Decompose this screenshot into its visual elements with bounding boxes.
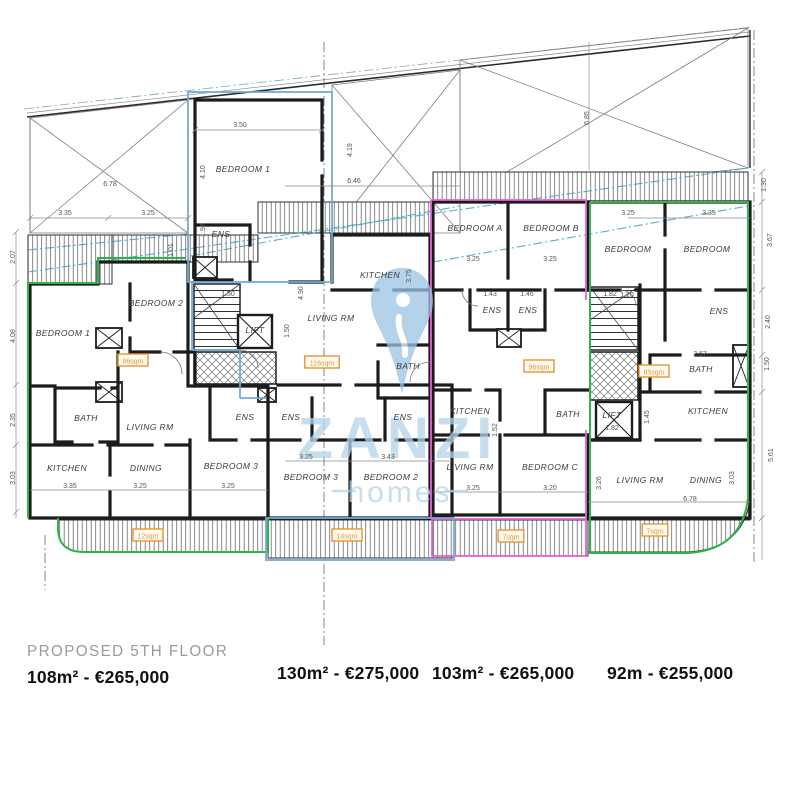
room-label: LIFT: [245, 325, 264, 335]
area-badge-label: 96sqm: [122, 359, 143, 366]
dimension-label: 2.35: [10, 413, 17, 427]
room-label: ENS: [519, 305, 538, 315]
zanzi-logo-pin: [371, 268, 433, 394]
dimension-label: 6.46: [347, 178, 361, 185]
room-label: BATH: [396, 361, 420, 371]
room-label: KITCHEN: [360, 270, 401, 280]
dimension-label: 4.90: [298, 286, 305, 300]
dimension-label: 3.25: [621, 210, 635, 217]
room-label: BATH: [689, 364, 713, 374]
dimension-label: 5.61: [768, 448, 775, 462]
dimension-label: 3.35: [702, 210, 716, 217]
dimension-label: 1.98: [200, 223, 207, 237]
room-label: BEDROOM 1: [36, 328, 91, 338]
room-label: BEDROOM C: [522, 462, 578, 472]
dimension-label: 1.50: [221, 291, 235, 298]
room-label: BEDROOM 1: [216, 164, 271, 174]
room-label: BEDROOM 3: [204, 461, 259, 471]
price-unit-103: 103m² - €265,000: [432, 663, 574, 684]
dimension-label: 3.50: [233, 122, 247, 129]
area-badge-label: 85sqm: [643, 370, 664, 377]
dimension-label: 4.08: [10, 329, 17, 343]
room-label: LIFT: [602, 410, 621, 420]
room-label: ENS: [212, 229, 231, 239]
price-unit-108: 108m² - €265,000: [27, 667, 169, 688]
room-label: ENS: [394, 412, 413, 422]
airspace-diagonal-lines: [28, 168, 748, 272]
room-label: BEDROOM B: [523, 223, 579, 233]
area-badge-label: 96sqm: [528, 365, 549, 372]
room-label: KITCHEN: [688, 406, 729, 416]
room-label: BEDROOM A: [447, 223, 502, 233]
dimension-label: 3.25: [133, 483, 147, 490]
area-badge-label: 7sqm: [502, 535, 519, 542]
lift-right: [596, 402, 632, 438]
room-label: KITCHEN: [47, 463, 88, 473]
dimension-label: 1.30: [761, 178, 768, 192]
dimension-label: 2.67: [693, 351, 707, 358]
dimension-label: 1.46: [520, 291, 534, 298]
dimension-label: 2.07: [10, 250, 17, 264]
room-label: LIVING RM: [446, 462, 494, 472]
room-label: BEDROOM 2: [129, 298, 184, 308]
room-label: BEDROOM 3: [284, 472, 339, 482]
room-label: KITCHEN: [450, 406, 491, 416]
area-badge-label: 14sqm: [336, 534, 357, 541]
area-badge-label: 12sqm: [137, 534, 158, 541]
price-unit-130: 130m² - €275,000: [277, 663, 419, 684]
stairs-right: [590, 287, 638, 400]
dimension-label: 3.03: [10, 471, 17, 485]
dimension-label: 3.35: [63, 483, 77, 490]
price-unit-92: 92m - €255,000: [607, 663, 733, 684]
dimension-label: 1.50: [764, 357, 771, 371]
room-label: BEDROOM: [605, 244, 652, 254]
room-label: BEDROOM: [684, 244, 731, 254]
room-label: ENS: [710, 306, 729, 316]
dimension-label: 3.25: [466, 256, 480, 263]
dimension-label: 3.25: [141, 210, 155, 217]
dimension-label: 3.43: [381, 454, 395, 461]
area-badge-label: 7sqm: [646, 529, 663, 536]
dimension-label: 1.01: [168, 243, 175, 257]
room-label: ENS: [282, 412, 301, 422]
room-label: DINING: [130, 463, 162, 473]
dimension-label: 1.82: [605, 425, 619, 432]
room-label: LIVING RM: [616, 475, 664, 485]
dimension-label: 3.03: [729, 471, 736, 485]
dimension-label: 1.45: [644, 410, 651, 424]
dimension-label: 4.10: [200, 165, 207, 179]
dimension-label: 3.25: [221, 483, 235, 490]
dimension-label: 3.20: [543, 485, 557, 492]
dimension-label: 1.52: [492, 423, 499, 437]
room-label: BEDROOM 2: [364, 472, 419, 482]
dimension-label: 3.67: [767, 233, 774, 247]
dimension-label: 3.25: [299, 454, 313, 461]
room-label: ENS: [483, 305, 502, 315]
dimension-label: 3.25: [466, 485, 480, 492]
dimension-label: 2.40: [765, 315, 772, 329]
dimension-label: 1.43: [483, 291, 497, 298]
dimension-label: 6.85: [584, 111, 591, 125]
floor-plan-page: ZANZI homes 96sqm116sqm96sqm85sqm12sqm14…: [0, 0, 810, 800]
dimension-label: 6.78: [683, 496, 697, 503]
dimension-label: 3.35: [58, 210, 72, 217]
dimension-label: 1.50: [284, 324, 291, 338]
dimension-label: 1.20: [620, 292, 634, 299]
room-label: BATH: [556, 409, 580, 419]
room-label: ENS: [236, 412, 255, 422]
room-label: DINING: [690, 475, 722, 485]
dimension-label: 1.82: [603, 291, 617, 298]
room-label: LIVING RM: [307, 313, 355, 323]
room-label: BATH: [74, 413, 98, 423]
dimension-label: 3.75: [406, 269, 413, 283]
dimension-label: 4.19: [347, 143, 354, 157]
floor-title: PROPOSED 5TH FLOOR: [27, 643, 228, 661]
dimension-label: 3.26: [596, 476, 603, 490]
room-label: LIVING RM: [126, 422, 174, 432]
area-badge-label: 116sqm: [310, 361, 335, 368]
dimension-label: 6.78: [103, 181, 117, 188]
dimension-label: 3.25: [543, 256, 557, 263]
